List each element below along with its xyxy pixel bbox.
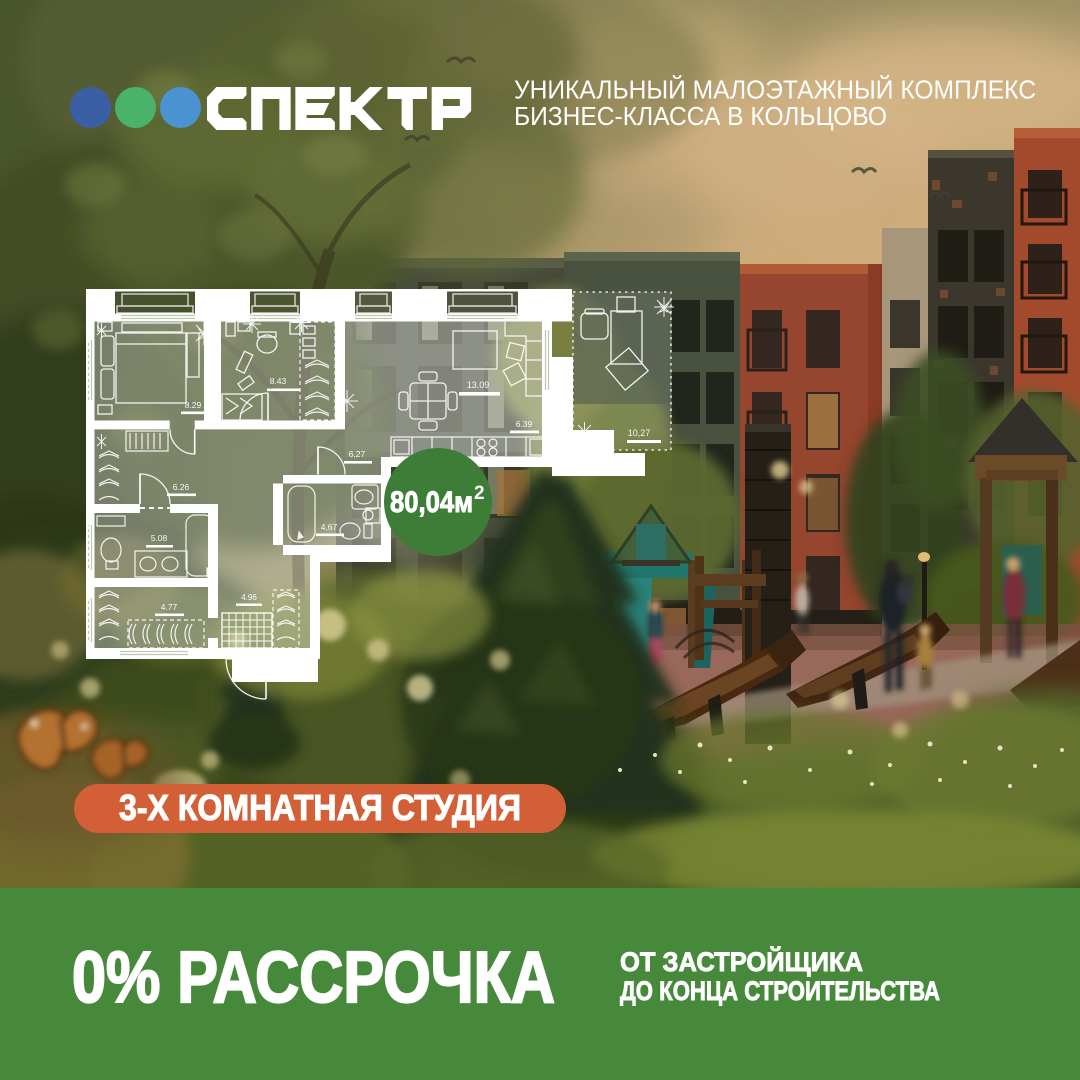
- svg-text:6,27: 6,27: [349, 449, 366, 459]
- svg-text:13.09: 13.09: [467, 380, 490, 390]
- svg-text:УНИКАЛЬНЫЙ МАЛОЭТАЖНЫЙ КОМПЛЕК: УНИКАЛЬНЫЙ МАЛОЭТАЖНЫЙ КОМПЛЕКС: [514, 75, 1036, 105]
- svg-text:8.29: 8.29: [185, 400, 202, 410]
- svg-text:ДО КОНЦА СТРОИТЕЛЬСТВА: ДО КОНЦА СТРОИТЕЛЬСТВА: [620, 976, 940, 1006]
- svg-text:10,27: 10,27: [628, 428, 651, 438]
- svg-text:БИЗНЕС-КЛАССА В КОЛЬЦОВО: БИЗНЕС-КЛАССА В КОЛЬЦОВО: [514, 101, 887, 131]
- svg-text:8.43: 8.43: [270, 376, 287, 386]
- svg-text:6.39: 6.39: [516, 419, 533, 429]
- svg-text:4.77: 4.77: [161, 602, 178, 612]
- svg-text:5.08: 5.08: [151, 533, 168, 543]
- svg-text:4.96: 4.96: [241, 593, 257, 602]
- svg-text:2: 2: [474, 483, 485, 504]
- svg-text:0% РАССРОЧКА: 0% РАССРОЧКА: [72, 938, 555, 1018]
- svg-text:4,67: 4,67: [321, 522, 338, 532]
- svg-text:ОТ ЗАСТРОЙЩИКА: ОТ ЗАСТРОЙЩИКА: [620, 946, 863, 977]
- svg-text:6.26: 6.26: [173, 482, 190, 492]
- svg-text:3-Х КОМНАТНАЯ СТУДИЯ: 3-Х КОМНАТНАЯ СТУДИЯ: [119, 787, 521, 828]
- svg-text:80,04м: 80,04м: [390, 486, 473, 519]
